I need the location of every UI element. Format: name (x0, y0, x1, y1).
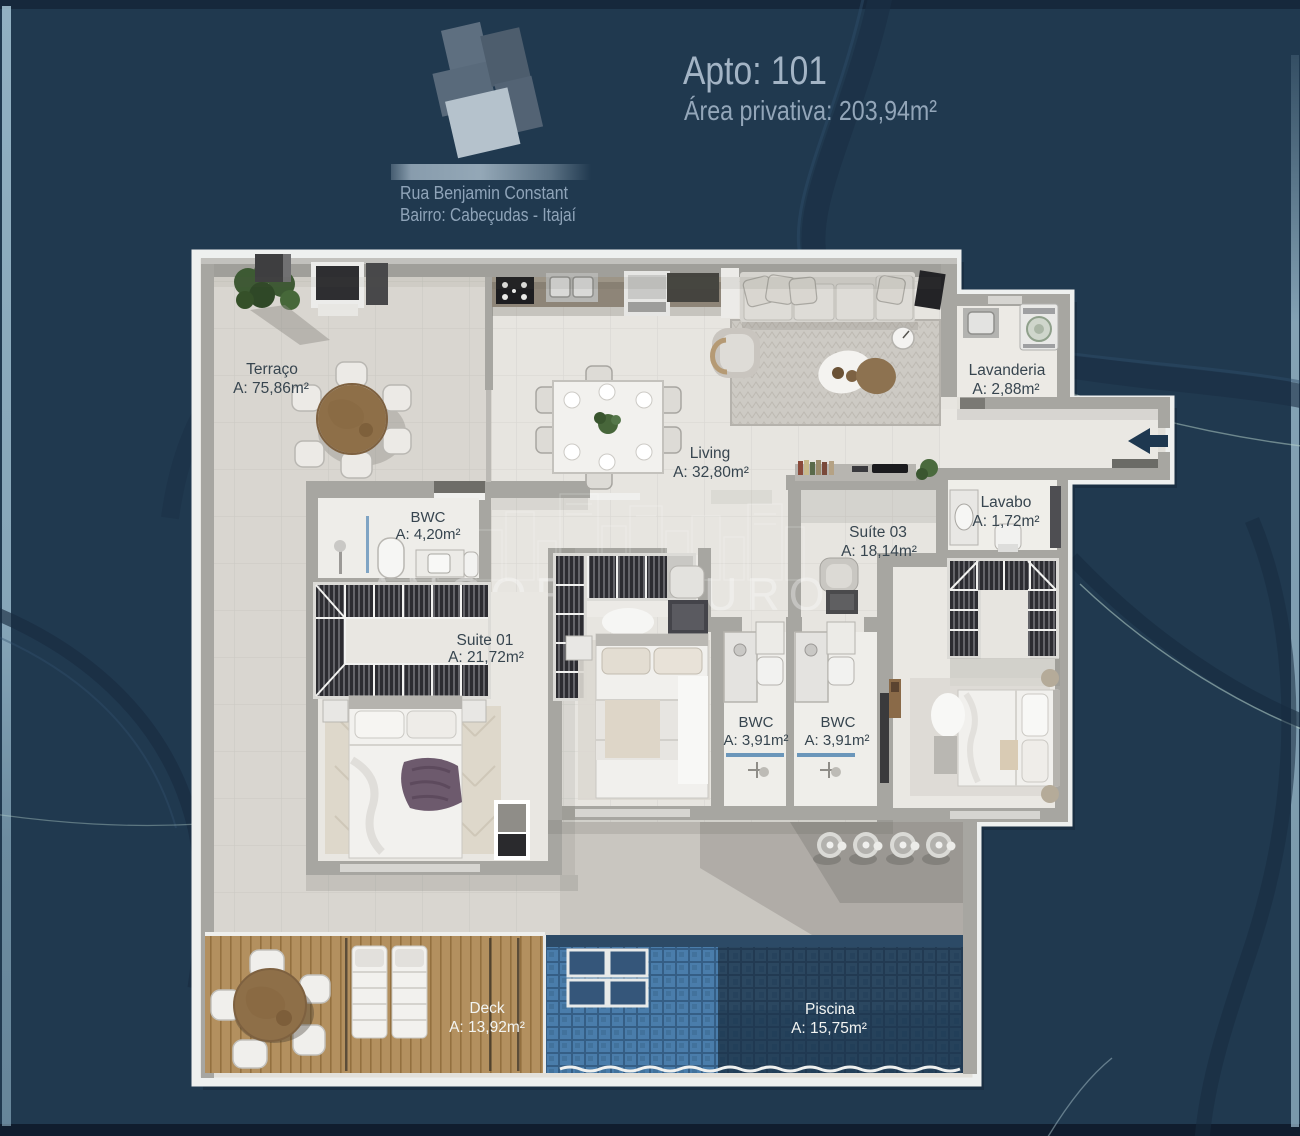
svg-text:A: 4,20m²: A: 4,20m² (395, 526, 460, 543)
svg-text:Piscina: Piscina (805, 1001, 855, 1018)
svg-text:A: 32,80m²: A: 32,80m² (673, 464, 749, 481)
svg-text:BWC: BWC (411, 509, 446, 526)
svg-text:Rua Benjamin Constant: Rua Benjamin Constant (400, 183, 568, 203)
svg-text:Living: Living (690, 445, 731, 462)
svg-text:A: 21,72m²: A: 21,72m² (448, 649, 524, 666)
svg-text:A: 3,91m²: A: 3,91m² (723, 732, 788, 749)
svg-text:A: 18,14m²: A: 18,14m² (841, 543, 917, 560)
svg-text:Bairro: Cabeçudas - Itajaí: Bairro: Cabeçudas - Itajaí (400, 205, 576, 225)
svg-text:Suíte 03: Suíte 03 (849, 524, 907, 541)
svg-text:Apto: 101: Apto: 101 (683, 49, 827, 93)
svg-text:A: 3,91m²: A: 3,91m² (804, 732, 869, 749)
svg-text:BWC: BWC (821, 714, 856, 731)
svg-text:A: 13,92m²: A: 13,92m² (449, 1019, 525, 1036)
svg-text:Lavanderia: Lavanderia (969, 362, 1046, 379)
svg-text:Suite 01: Suite 01 (457, 632, 514, 649)
svg-text:Lavabo: Lavabo (981, 494, 1032, 511)
svg-text:Terraço: Terraço (246, 361, 298, 378)
svg-text:A: 2,88m²: A: 2,88m² (972, 381, 1039, 398)
svg-text:A: 75,86m²: A: 75,86m² (233, 380, 309, 397)
svg-text:A: 1,72m²: A: 1,72m² (972, 513, 1039, 530)
svg-text:A: 15,75m²: A: 15,75m² (791, 1020, 867, 1037)
svg-text:BWC: BWC (739, 714, 774, 731)
svg-text:Área privativa: 203,94m²: Área privativa: 203,94m² (684, 95, 937, 126)
svg-text:Deck: Deck (469, 1000, 505, 1017)
